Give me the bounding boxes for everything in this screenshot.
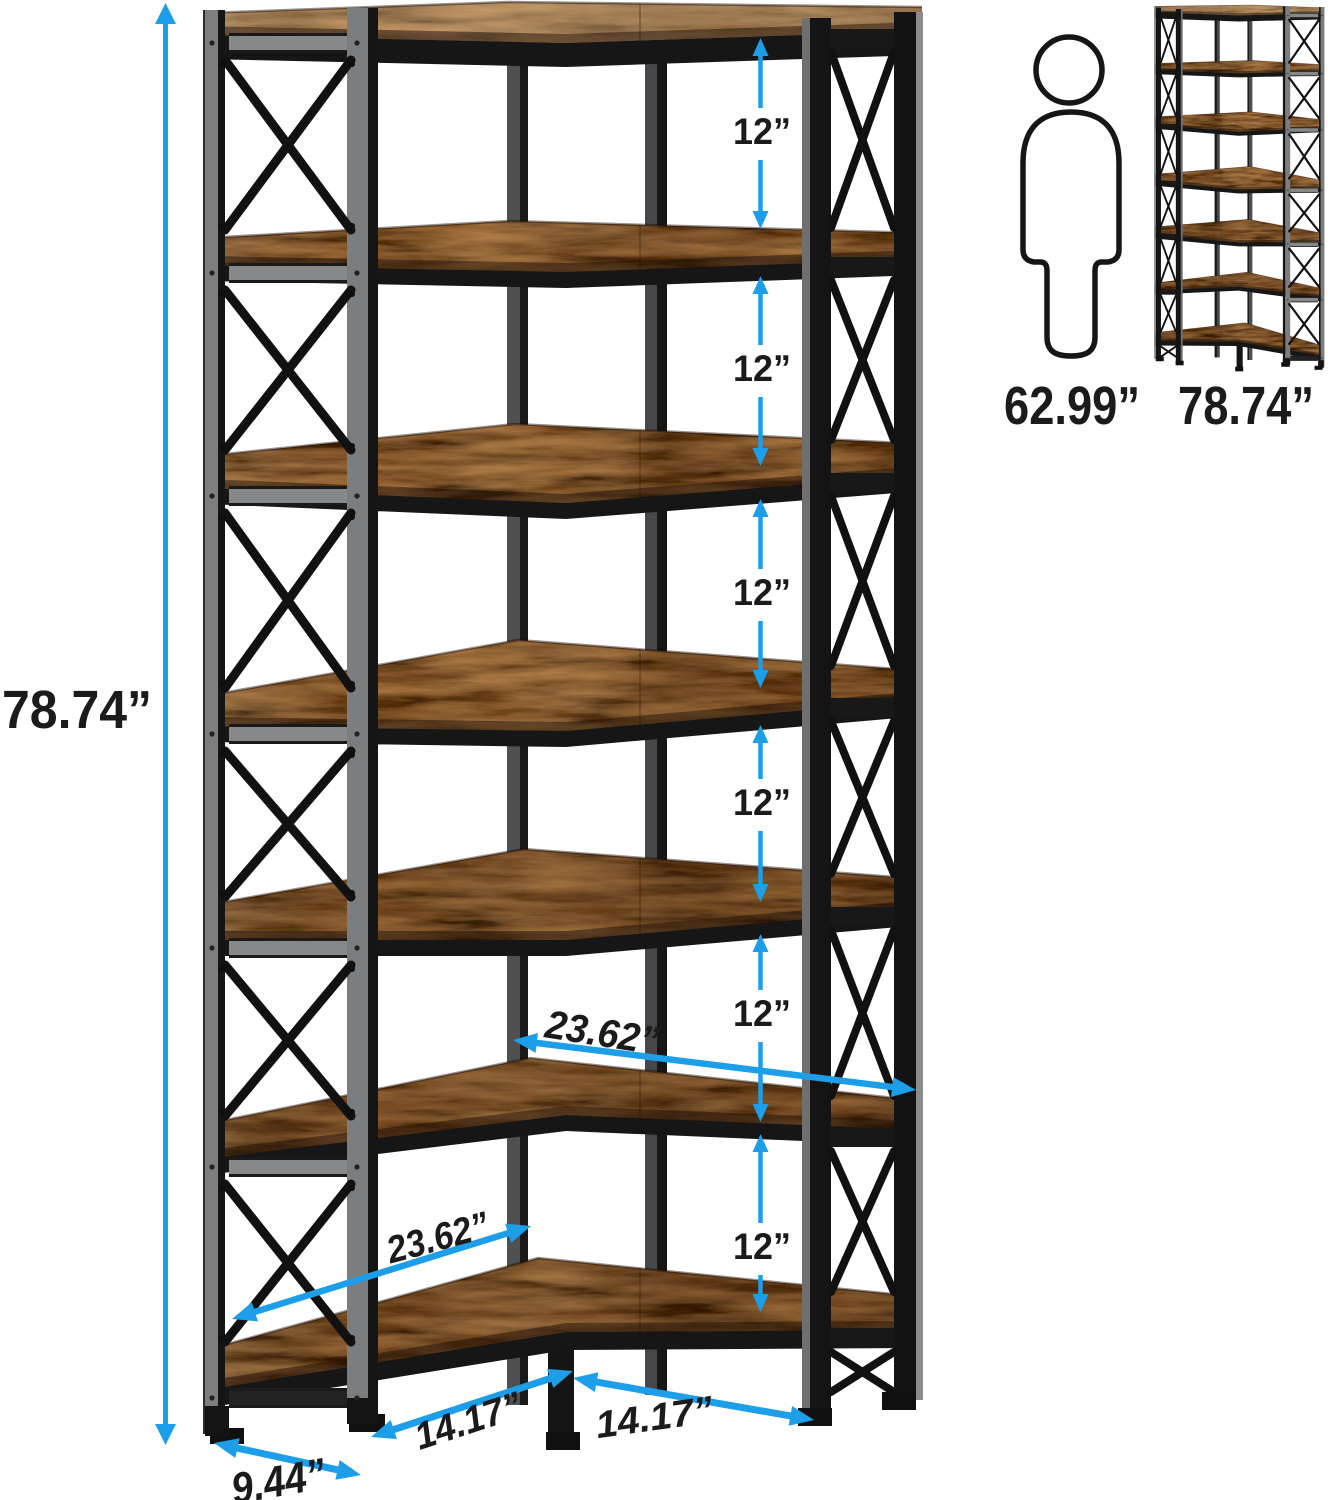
svg-text:12”: 12” — [733, 348, 791, 389]
svg-text:12”: 12” — [733, 1226, 791, 1267]
svg-text:12”: 12” — [733, 993, 791, 1034]
svg-text:12”: 12” — [733, 572, 791, 613]
svg-text:78.74”: 78.74” — [1178, 376, 1314, 436]
svg-text:12”: 12” — [733, 782, 791, 823]
svg-text:62.99”: 62.99” — [1004, 376, 1140, 436]
svg-text:12”: 12” — [733, 111, 791, 152]
svg-text:78.74”: 78.74” — [2, 680, 152, 740]
